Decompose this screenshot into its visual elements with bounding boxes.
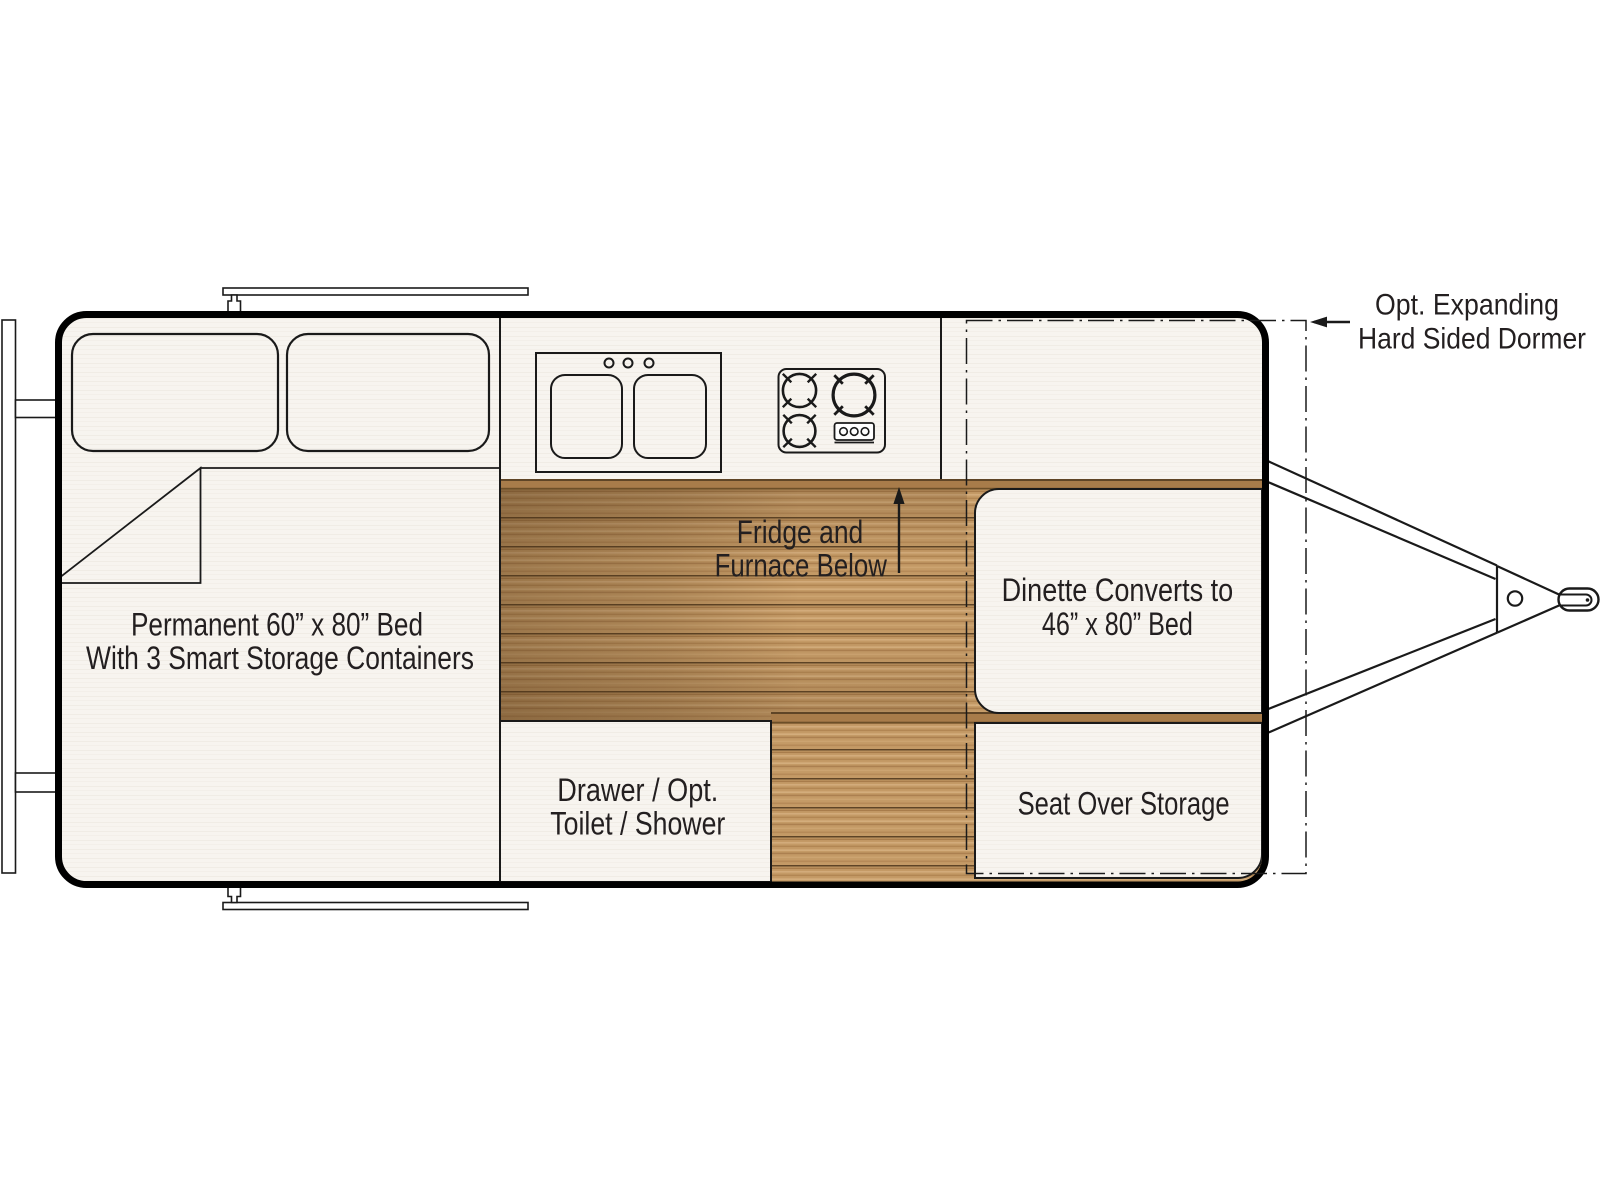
svg-text:Toilet / Shower: Toilet / Shower [550, 805, 725, 841]
svg-text:Drawer / Opt.: Drawer / Opt. [557, 772, 718, 808]
svg-text:Furnace Below: Furnace Below [715, 548, 888, 584]
svg-text:Hard Sided Dormer: Hard Sided Dormer [1358, 323, 1586, 356]
svg-text:Seat Over Storage: Seat Over Storage [1018, 785, 1230, 821]
svg-text:Dinette Converts to: Dinette Converts to [1002, 572, 1234, 608]
svg-text:Fridge and: Fridge and [737, 514, 864, 550]
svg-text:Opt. Expanding: Opt. Expanding [1375, 289, 1559, 322]
svg-text:Permanent 60” x 80” Bed: Permanent 60” x 80” Bed [131, 607, 423, 643]
svg-text:46” x 80” Bed: 46” x 80” Bed [1042, 606, 1193, 642]
svg-text:With 3 Smart Storage Container: With 3 Smart Storage Containers [86, 640, 474, 676]
